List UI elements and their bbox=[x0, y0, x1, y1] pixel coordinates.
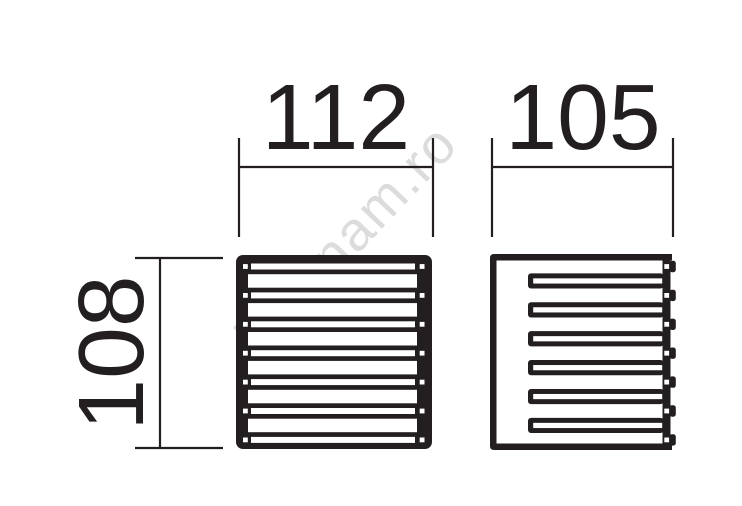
front-screw-hole bbox=[243, 380, 248, 385]
rail-bump bbox=[670, 261, 676, 272]
front-light-band bbox=[248, 303, 417, 317]
side-louver-slot bbox=[533, 365, 662, 370]
rail-bump bbox=[670, 434, 676, 445]
dim-front-height: 108 bbox=[59, 258, 223, 448]
front-slot bbox=[251, 321, 415, 327]
front-slot bbox=[251, 437, 415, 443]
side-louvers bbox=[528, 273, 664, 433]
front-screw-hole bbox=[420, 409, 425, 414]
rail-screw-hole bbox=[664, 438, 669, 443]
front-view bbox=[236, 255, 432, 449]
side-louver-slot bbox=[533, 336, 662, 341]
dim-front-width-label: 112 bbox=[262, 65, 410, 169]
rail-screw-hole bbox=[664, 322, 669, 327]
front-screw-hole bbox=[420, 322, 425, 327]
drawing-canvas: luminam.ro 112 105 108 bbox=[0, 0, 742, 506]
front-screw-hole bbox=[243, 409, 248, 414]
front-slot bbox=[251, 292, 415, 298]
rail-bump bbox=[670, 348, 676, 359]
front-screw-hole bbox=[420, 264, 425, 269]
rail-screw-hole bbox=[664, 264, 669, 269]
front-screw-hole bbox=[243, 293, 248, 298]
front-screw-hole bbox=[243, 322, 248, 327]
front-light-band bbox=[248, 419, 417, 433]
front-screw-hole bbox=[420, 380, 425, 385]
rail-bump bbox=[670, 319, 676, 330]
front-light-band bbox=[248, 361, 417, 375]
rail-bump bbox=[670, 376, 676, 387]
side-view bbox=[490, 254, 676, 450]
dim-front-height-label: 108 bbox=[59, 275, 163, 430]
rail-screw-hole bbox=[664, 293, 669, 298]
front-slot bbox=[251, 350, 415, 356]
dimension-drawing: luminam.ro 112 105 108 bbox=[0, 0, 742, 506]
front-screw-hole bbox=[420, 293, 425, 298]
front-light-band bbox=[248, 274, 417, 288]
front-screw-hole bbox=[420, 438, 425, 443]
side-louver-slot bbox=[533, 423, 662, 428]
front-screw-hole bbox=[243, 264, 248, 269]
front-screw-hole bbox=[243, 438, 248, 443]
dim-side-width-label: 105 bbox=[505, 65, 660, 169]
front-screw-hole bbox=[420, 351, 425, 356]
rail-bump bbox=[670, 405, 676, 416]
side-louver-slot bbox=[533, 278, 662, 283]
rail-bump bbox=[670, 290, 676, 301]
rail-screw-hole bbox=[664, 409, 669, 414]
front-light-band bbox=[248, 332, 417, 346]
side-louver-slot bbox=[533, 394, 662, 399]
front-slot bbox=[251, 408, 415, 414]
front-slot bbox=[251, 379, 415, 385]
rail-screw-hole bbox=[664, 380, 669, 385]
front-slot bbox=[251, 264, 415, 270]
rail-screw-hole bbox=[664, 351, 669, 356]
side-louver-slot bbox=[533, 307, 662, 312]
front-light-band bbox=[248, 390, 417, 404]
front-screw-hole bbox=[243, 351, 248, 356]
dim-side-width: 105 bbox=[492, 65, 673, 237]
